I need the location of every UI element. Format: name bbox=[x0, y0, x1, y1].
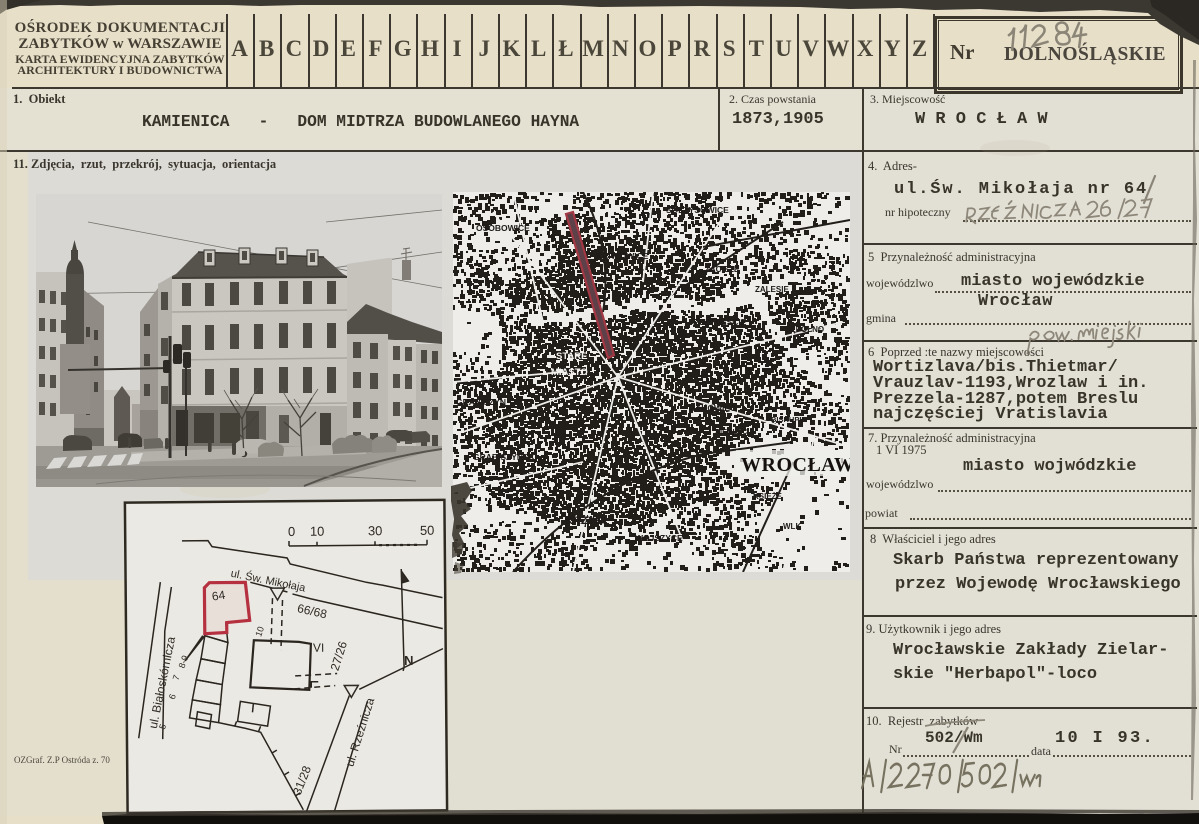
svg-text:10: 10 bbox=[310, 524, 325, 539]
svg-text:PODMIEŚCIE: PODMIEŚCIE bbox=[693, 316, 747, 327]
svg-text:64: 64 bbox=[211, 588, 227, 604]
svg-text:GRABISZYN: GRABISZYN bbox=[456, 397, 506, 407]
svg-text:ZACISZE: ZACISZE bbox=[705, 265, 740, 274]
svg-text:RAKOWIEC: RAKOWIEC bbox=[689, 403, 736, 413]
svg-text:MIASTO: MIASTO bbox=[551, 367, 588, 378]
svg-text:GRABISZYNEK: GRABISZYNEK bbox=[473, 452, 536, 462]
svg-text:50: 50 bbox=[420, 523, 435, 538]
svg-text:VI: VI bbox=[313, 641, 324, 655]
svg-text:OSOBOWICE: OSOBOWICE bbox=[476, 223, 530, 233]
svg-text:KARŁOWICE: KARŁOWICE bbox=[596, 251, 649, 261]
svg-text:SIEDLEC: SIEDLEC bbox=[715, 427, 748, 436]
svg-text:KSIĘŻE: KSIĘŻE bbox=[753, 492, 783, 501]
svg-text:WLK: WLK bbox=[783, 522, 801, 531]
svg-text:KRZYKI: KRZYKI bbox=[565, 515, 606, 527]
svg-text:SĘPOLNO: SĘPOLNO bbox=[785, 325, 824, 334]
svg-text:0: 0 bbox=[288, 524, 295, 539]
svg-text:30: 30 bbox=[368, 523, 383, 538]
svg-text:WROCŁAW: WROCŁAW bbox=[741, 454, 850, 476]
svg-text:ZALESIE: ZALESIE bbox=[755, 285, 789, 294]
svg-text:N: N bbox=[404, 653, 414, 668]
svg-text:BISKUPIN: BISKUPIN bbox=[771, 415, 807, 424]
svg-text:STARE: STARE bbox=[556, 351, 588, 362]
svg-text:SOŁTYSOWICE: SOŁTYSOWICE bbox=[666, 205, 729, 215]
svg-text:WOJSZYCE: WOJSZYCE bbox=[635, 533, 683, 543]
